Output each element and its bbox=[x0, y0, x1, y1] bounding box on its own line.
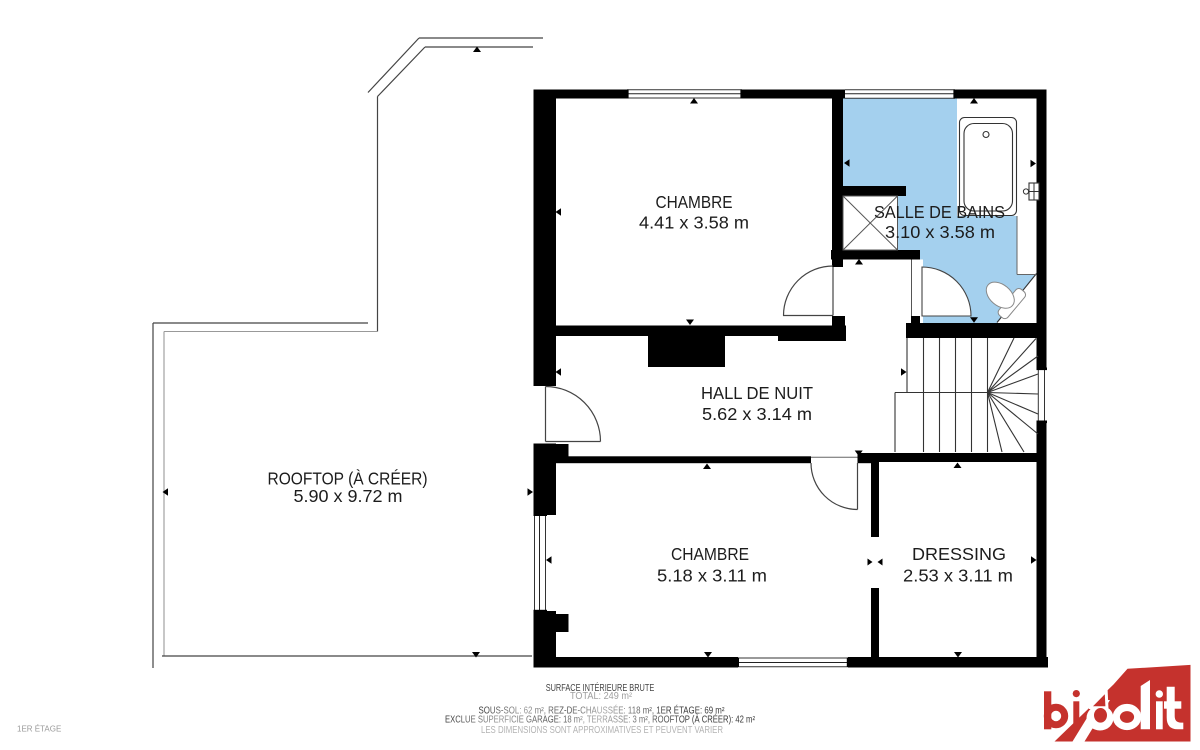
svg-text:5.62 x 3.14 m: 5.62 x 3.14 m bbox=[702, 404, 812, 424]
svg-text:1ER ÉTAGE: 1ER ÉTAGE bbox=[17, 725, 61, 734]
svg-text:3.10 x 3.58 m: 3.10 x 3.58 m bbox=[885, 222, 995, 242]
svg-text:LES DIMENSIONS SONT APPROXIMAT: LES DIMENSIONS SONT APPROXIMATIVES ET PE… bbox=[481, 725, 723, 736]
svg-text:TOTAL: 249 m²: TOTAL: 249 m² bbox=[570, 691, 633, 702]
svg-text:CHAMBRE: CHAMBRE bbox=[656, 192, 733, 212]
svg-text:2.53 x 3.11 m: 2.53 x 3.11 m bbox=[903, 566, 1013, 586]
svg-text:5.18 x 3.11 m: 5.18 x 3.11 m bbox=[657, 566, 767, 586]
svg-text:EXCLUE SUPERFICIE GARAGE: 18 m: EXCLUE SUPERFICIE GARAGE: 18 m², TERRASS… bbox=[445, 715, 756, 726]
svg-text:DRESSING: DRESSING bbox=[912, 544, 1006, 564]
svg-text:CHAMBRE: CHAMBRE bbox=[671, 544, 749, 564]
svg-text:5.90 x 9.72 m: 5.90 x 9.72 m bbox=[294, 486, 403, 506]
svg-text:SALLE DE BAINS: SALLE DE BAINS bbox=[874, 202, 1005, 222]
svg-text:4.41 x 3.58 m: 4.41 x 3.58 m bbox=[639, 212, 749, 232]
svg-text:HALL DE NUIT: HALL DE NUIT bbox=[701, 383, 813, 403]
